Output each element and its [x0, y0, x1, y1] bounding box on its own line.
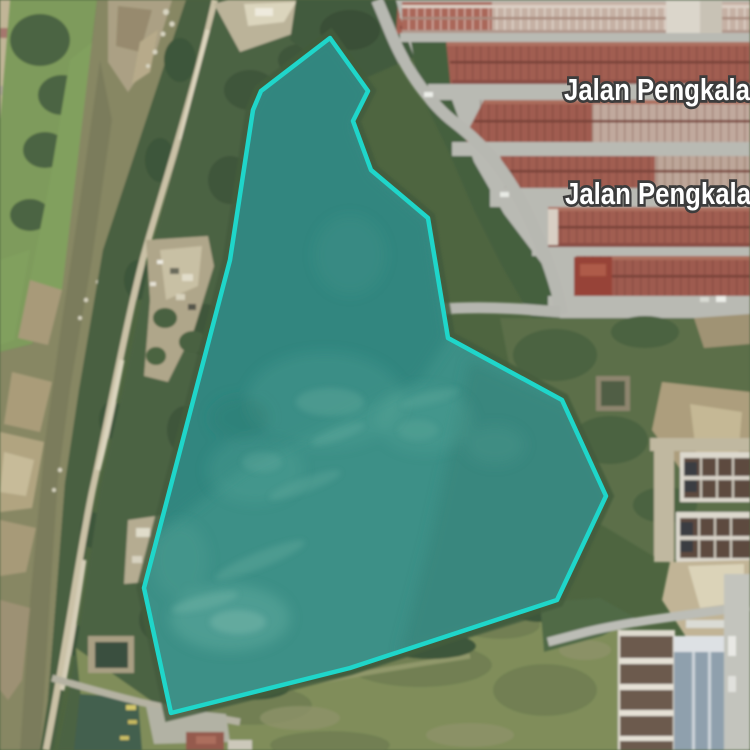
svg-text:Jalan Pengkala: Jalan Pengkala	[564, 72, 750, 107]
svg-text:Jalan Pengkala: Jalan Pengkala	[565, 176, 750, 211]
